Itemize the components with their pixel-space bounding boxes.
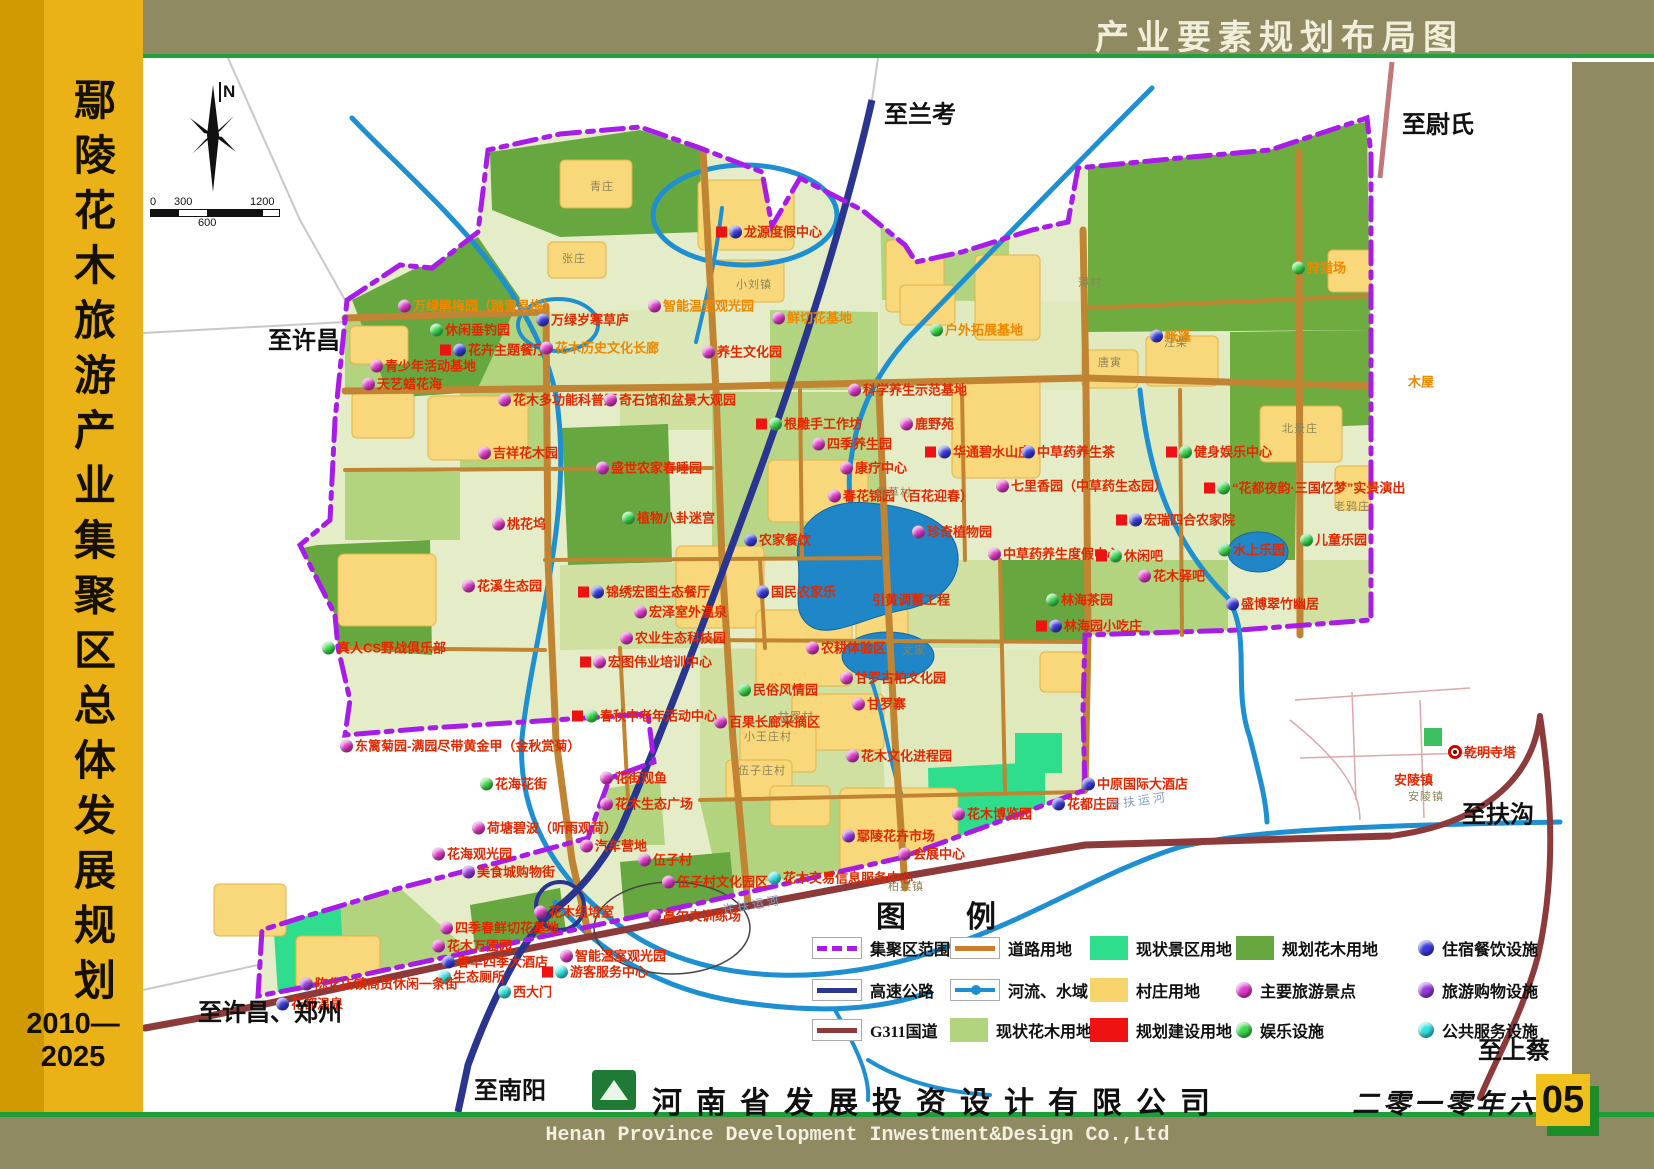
- company-name-cn: 河南省发展投资设计有限公司: [652, 1078, 1224, 1122]
- scale-tick: 300: [174, 196, 192, 208]
- company-name-en: Henan Province Development Inwestment&De…: [143, 1124, 1572, 1147]
- page-number: 05: [1536, 1074, 1590, 1126]
- scale-tick: 0: [150, 196, 156, 208]
- sidebar-accent-strip: [0, 0, 44, 1169]
- compass-north-label: N: [219, 82, 235, 102]
- scale-bar: 0 300 1200 600: [150, 196, 280, 230]
- top-divider: [143, 54, 1654, 58]
- planning-map-page: 鄢陵花木旅游产业集聚区总体发展规划 2010—2025 产业要素规划布局图 He…: [0, 0, 1654, 1169]
- right-margin-bar: [1572, 62, 1654, 1112]
- page-title: 产业要素规划布局图: [1095, 10, 1464, 59]
- plan-title-vertical: 鄢陵花木旅游产业集聚区总体发展规划: [62, 78, 123, 1013]
- scale-tick: 600: [198, 217, 216, 229]
- map-canvas: [0, 0, 1654, 1169]
- scale-bar-graphic: [150, 209, 280, 217]
- scale-tick: 1200: [250, 196, 274, 208]
- top-bar: 产业要素规划布局图: [143, 0, 1654, 58]
- plan-years: 2010—2025: [6, 1008, 140, 1074]
- company-logo: [592, 1070, 636, 1110]
